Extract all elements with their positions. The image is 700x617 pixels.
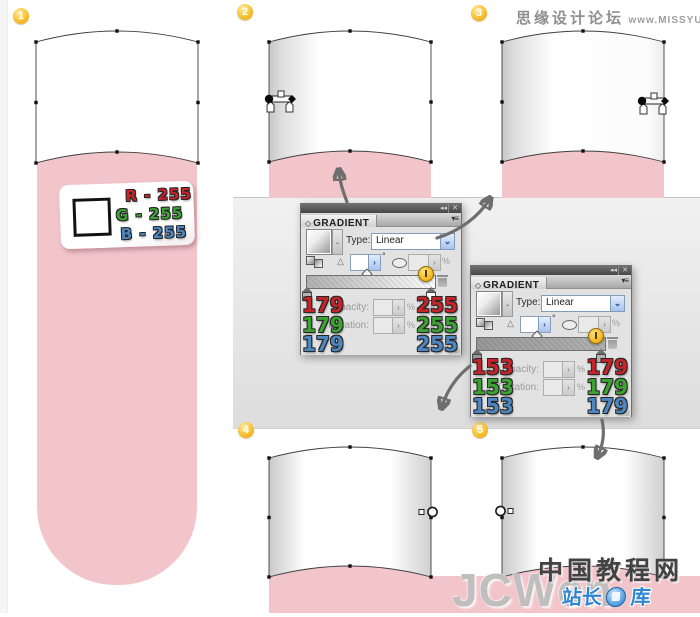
rgb-value-label: R - 255 G - 255 B - 255	[59, 181, 195, 250]
reverse-gradient-icon[interactable]	[476, 318, 493, 330]
percent-symbol: %	[577, 364, 585, 374]
spinner-icon[interactable]: ›	[538, 317, 550, 332]
select-chevron-icon[interactable]: ⌄	[440, 234, 454, 249]
annotator-stop[interactable]	[286, 102, 293, 113]
site-name-text: 思缘设计论坛	[516, 10, 624, 27]
angle-icon: △	[337, 256, 344, 267]
annotation-highlight-dot	[588, 328, 604, 344]
gradient-swatch[interactable]	[476, 291, 502, 317]
panel-body: ⌄ Type: Linear ⌄ △ › ° › % Opacity: › % …	[301, 227, 461, 355]
pink-base-step-2	[269, 151, 431, 198]
close-panel-icon[interactable]: ✕	[618, 266, 628, 275]
close-panel-icon[interactable]: ✕	[448, 204, 458, 213]
panel-titlebar: ◂◂ ✕	[471, 266, 631, 275]
right-stop-b-value: 255	[416, 335, 458, 355]
location-field[interactable]: ›	[373, 317, 405, 334]
step-badge-2: 2	[237, 4, 253, 20]
delete-stop-icon[interactable]	[607, 336, 618, 350]
right-stop-b-value: 179	[586, 397, 628, 417]
left-stop-rgb-values: 179 179 179	[302, 296, 344, 355]
percent-symbol: %	[407, 302, 415, 312]
transparency-hatch	[307, 276, 435, 288]
left-stop-b-value: 153	[472, 397, 514, 417]
panel-tab-bar: ◇GRADIENT ▾≡	[301, 213, 461, 227]
annotator-midpoint[interactable]	[651, 93, 657, 99]
percent-symbol: %	[442, 256, 450, 266]
annotator-midpoint[interactable]	[278, 91, 284, 97]
type-value: Linear	[376, 235, 404, 246]
spinner-icon: ›	[562, 380, 574, 395]
gradient-type-select[interactable]: Linear ⌄	[541, 295, 625, 312]
degree-symbol: °	[552, 313, 556, 323]
cylinder-shape-step-1[interactable]	[36, 31, 198, 163]
white-color-swatch	[72, 198, 111, 237]
collapse-panel-icon[interactable]: ◂◂	[610, 266, 617, 275]
type-value: Linear	[546, 297, 574, 308]
pink-base-step-4	[269, 566, 431, 613]
gradient-endpoint-widget-step-5[interactable]	[494, 505, 516, 517]
opacity-field[interactable]: ›	[373, 299, 405, 316]
panel-menu-icon[interactable]: ▾≡	[621, 276, 628, 285]
percent-symbol: %	[612, 318, 620, 328]
panel-tab-bar: ◇GRADIENT ▾≡	[471, 275, 631, 289]
select-chevron-icon[interactable]: ⌄	[610, 296, 624, 311]
page-left-margin	[0, 0, 8, 613]
step-badge-4: 4	[238, 422, 254, 438]
panel-menu-icon[interactable]: ▾≡	[451, 214, 458, 223]
right-stop-rgb-values: 255 255 255	[416, 296, 458, 355]
panel-body: ⌄ Type: Linear ⌄ △ › ° › % Opacity: › % …	[471, 289, 631, 417]
annotation-highlight-dot	[418, 266, 434, 282]
angle-icon: △	[507, 318, 514, 329]
site-watermark-header: 思缘设计论坛 www.MISSYUAN.COM	[516, 7, 700, 28]
r-value-text: R - 255	[125, 185, 192, 206]
swatch-dropdown-icon[interactable]: ⌄	[332, 229, 343, 255]
type-label: Type:	[346, 235, 370, 246]
b-value-text: B - 255	[120, 223, 193, 245]
endpoint-circle[interactable]	[428, 507, 437, 516]
step4-canvas	[263, 440, 437, 613]
step-badge-5: 5	[472, 422, 488, 438]
swatch-dropdown-icon[interactable]: ⌄	[502, 291, 513, 317]
right-stop-rgb-values: 179 179 179	[586, 358, 628, 417]
left-stop-b-value: 179	[302, 335, 344, 355]
annotator-stop[interactable]	[659, 104, 666, 115]
left-stop-rgb-values: 153 153 153	[472, 358, 514, 417]
percent-symbol: %	[407, 320, 415, 330]
panel-titlebar: ◂◂ ✕	[301, 204, 461, 213]
reverse-gradient-icon[interactable]	[306, 256, 323, 268]
gradient-endpoint-widget-step-4[interactable]	[418, 506, 440, 518]
annotator-origin[interactable]	[638, 97, 646, 105]
gradient-slider-bar[interactable]	[476, 337, 606, 351]
degree-symbol: °	[382, 251, 386, 261]
aspect-ratio-icon	[392, 258, 407, 268]
location-field[interactable]: ›	[543, 379, 575, 396]
step-badge-3: 3	[471, 5, 487, 21]
endpoint-circle[interactable]	[496, 506, 505, 515]
opacity-field[interactable]: ›	[543, 361, 575, 378]
gradient-slider-bar[interactable]	[306, 275, 436, 289]
transparency-hatch	[477, 338, 605, 350]
gradient-type-select[interactable]: Linear ⌄	[371, 233, 455, 250]
watermark-blue-logo: 站长 库	[561, 581, 652, 610]
type-label: Type:	[516, 297, 540, 308]
endpoint-square[interactable]	[508, 509, 513, 514]
cylinder-shape-step-4[interactable]	[269, 447, 431, 577]
disk-icon	[606, 587, 627, 607]
spinner-icon: ›	[392, 300, 404, 315]
collapse-panel-icon[interactable]: ◂◂	[440, 204, 447, 213]
gradient-annotator-step-3[interactable]	[637, 92, 673, 118]
spinner-icon: ›	[562, 362, 574, 377]
step1-canvas	[30, 24, 204, 174]
endpoint-square[interactable]	[419, 510, 424, 515]
step-badge-1: 1	[13, 8, 29, 24]
percent-symbol: %	[577, 382, 585, 392]
blue-logo-text-2: 库	[630, 587, 652, 609]
annotator-origin[interactable]	[265, 95, 273, 103]
gradient-panel-2: ◂◂ ✕ ◇GRADIENT ▾≡ ⌄ Type: Linear ⌄ △ › °…	[470, 265, 632, 417]
gradient-panel-1: ◂◂ ✕ ◇GRADIENT ▾≡ ⌄ Type: Linear ⌄ △ › °…	[300, 203, 462, 355]
delete-stop-icon[interactable]	[437, 274, 448, 288]
spinner-icon[interactable]: ›	[368, 255, 380, 270]
spinner-icon: ›	[392, 318, 404, 333]
pink-base-step-3	[502, 151, 664, 198]
aspect-ratio-icon	[562, 320, 577, 330]
blue-logo-text: 站长	[561, 587, 603, 609]
gradient-swatch[interactable]	[306, 229, 332, 255]
gradient-annotator-step-2[interactable]	[264, 90, 300, 116]
site-url-text: www.MISSYUAN.COM	[628, 15, 700, 26]
